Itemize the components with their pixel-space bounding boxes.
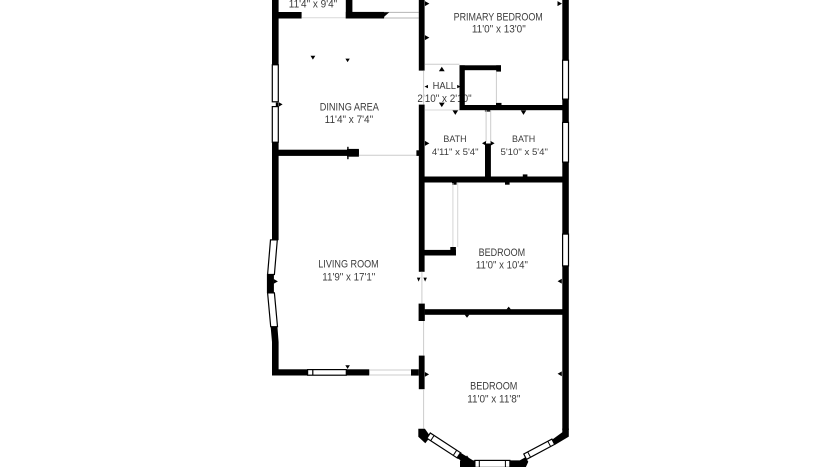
svg-text:11'0" x 13'0": 11'0" x 13'0" [472, 23, 526, 36]
svg-text:11'0" x 10'4": 11'0" x 10'4" [476, 260, 528, 272]
svg-text:11'4" x 9'4": 11'4" x 9'4" [289, 0, 338, 11]
svg-text:11'9" x 17'1": 11'9" x 17'1" [322, 271, 375, 284]
svg-text:11'4" x 7'4": 11'4" x 7'4" [325, 115, 374, 126]
svg-text:4'11" x 5'4": 4'11" x 5'4" [432, 147, 479, 158]
svg-text:DINING AREA: DINING AREA [320, 102, 379, 114]
svg-text:11'0" x 11'8": 11'0" x 11'8" [467, 393, 520, 406]
svg-text:LIVING ROOM: LIVING ROOM [318, 259, 378, 271]
svg-text:BATH: BATH [512, 134, 535, 144]
svg-text:BEDROOM: BEDROOM [470, 381, 517, 393]
svg-text:BATH: BATH [443, 134, 466, 144]
svg-text:BEDROOM: BEDROOM [479, 247, 526, 259]
svg-text:5'10" x 5'4": 5'10" x 5'4" [500, 147, 548, 158]
svg-text:HALL: HALL [433, 81, 457, 92]
